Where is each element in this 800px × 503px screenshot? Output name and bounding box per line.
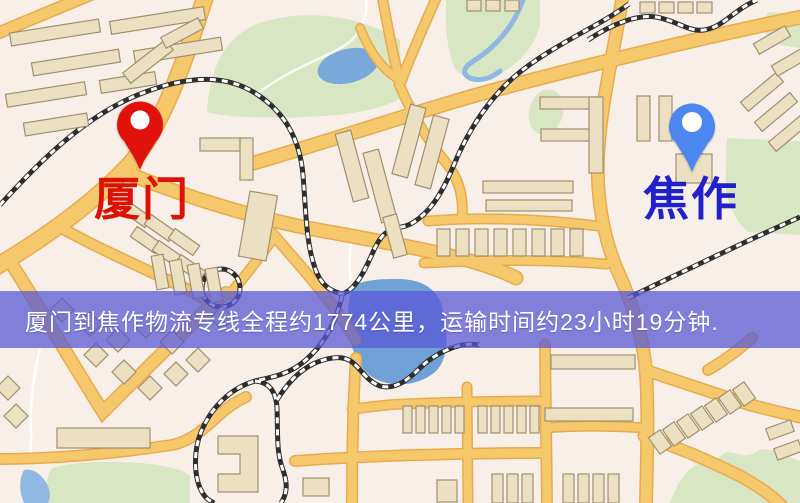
origin-marker[interactable] (113, 95, 167, 173)
map-background[interactable] (0, 0, 800, 503)
destination-label: 焦作 (643, 176, 739, 222)
route-info-banner: 厦门到焦作物流专线全程约1774公里，运输时间约23小时19分钟. (0, 291, 800, 348)
origin-pin-icon (113, 95, 167, 173)
destination-pin-hole (682, 112, 702, 132)
origin-pin-hole (131, 111, 150, 130)
destination-pin-icon (665, 97, 719, 175)
route-info-text: 厦门到焦作物流专线全程约1774公里，运输时间约23小时19分钟. (0, 303, 719, 337)
origin-label: 厦门 (94, 176, 190, 222)
destination-marker[interactable] (665, 97, 719, 175)
map-view[interactable]: 厦门 焦作 厦门到焦作物流专线全程约1774公里，运输时间约23小时19分钟. (0, 0, 800, 503)
